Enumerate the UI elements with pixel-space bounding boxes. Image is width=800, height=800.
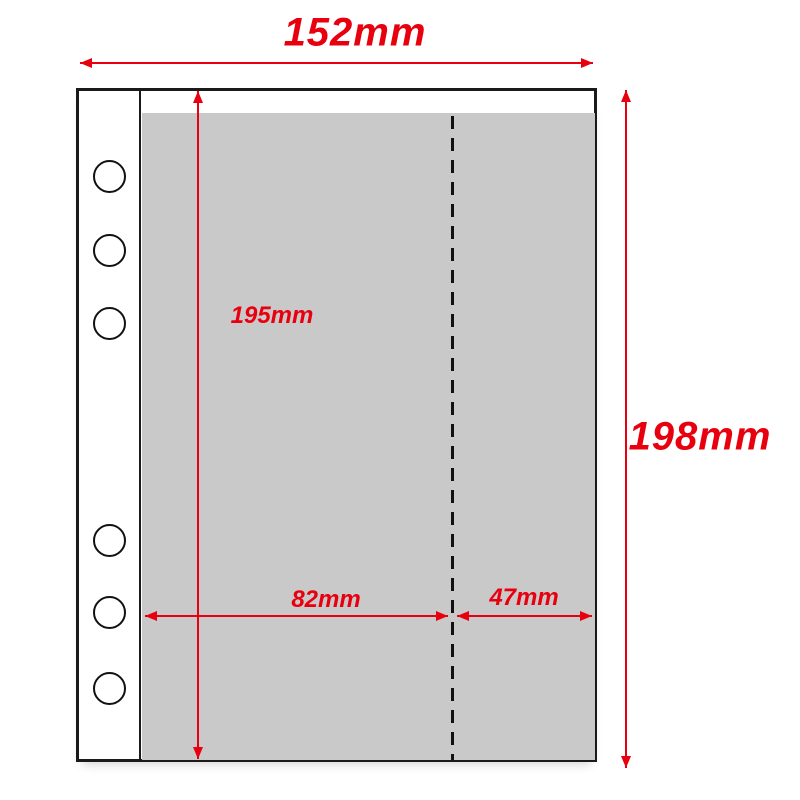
binder-hole-3 [93,307,126,340]
binder-hole-6 [93,672,126,705]
pocket-seam-dashed-line [451,116,454,760]
dim-label-total-height: 198mm [629,415,772,460]
binder-hole-5 [93,596,126,629]
dim-label-total-width: 152mm [284,11,427,56]
binder-hole-2 [93,234,126,267]
dim-label-pocket-right-width: 47mm [489,584,558,612]
binder-hole-4 [93,524,126,557]
dim-label-pocket-height: 195mm [231,302,314,330]
dim-label-pocket-left-width: 82mm [291,586,360,614]
pocket-sleeve-area [142,113,595,760]
punch-strip-divider-line [139,88,141,762]
binder-hole-1 [93,160,126,193]
diagram-canvas: 152mm 198mm 195mm 82mm 47mm [0,0,800,800]
